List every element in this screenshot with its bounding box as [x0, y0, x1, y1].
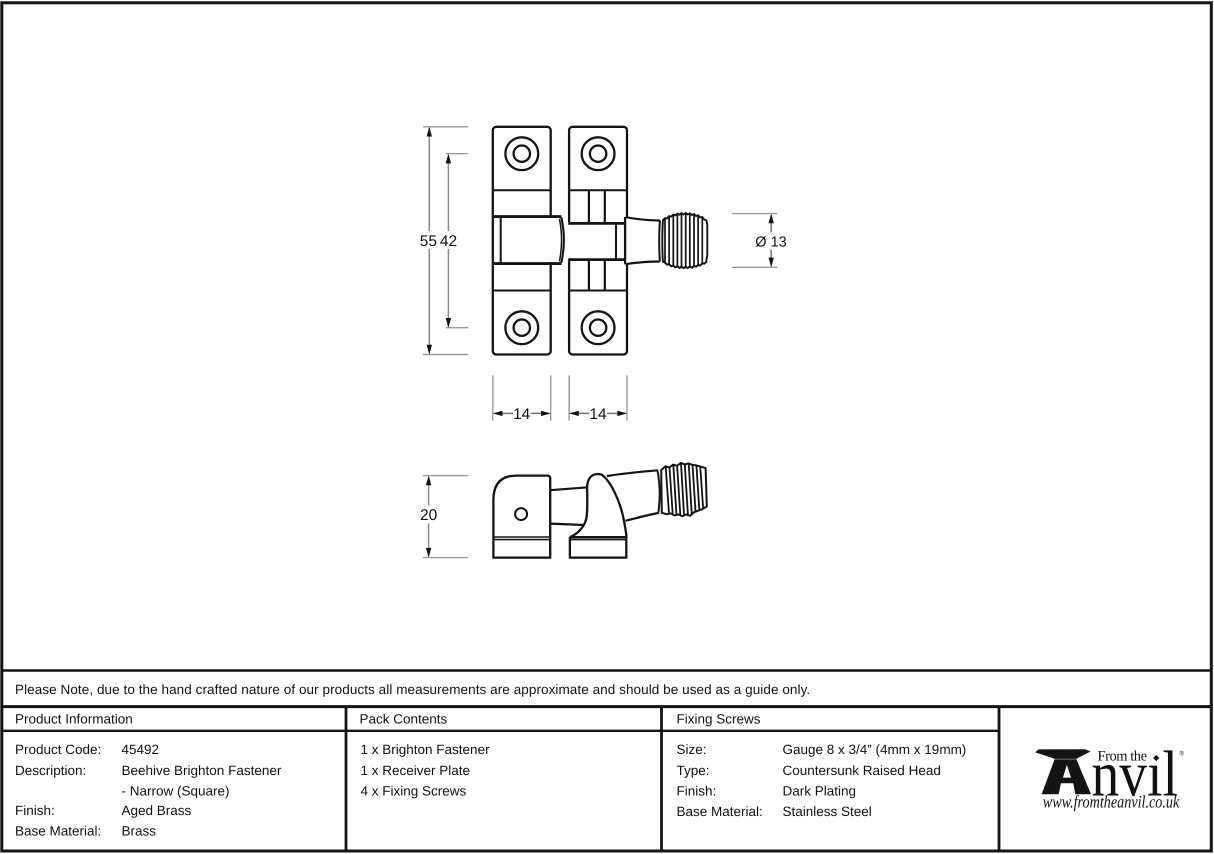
svg-text:4 x Fixing Screws: 4 x Fixing Screws: [361, 784, 467, 799]
svg-text:®: ®: [1179, 750, 1185, 758]
svg-text:Base Material:: Base Material:: [15, 824, 101, 839]
svg-text:Pack Contents: Pack Contents: [360, 712, 448, 727]
svg-text:Type:: Type:: [677, 763, 710, 778]
svg-text:Gauge 8 x 3/4” (4mm x 19mm): Gauge 8 x 3/4” (4mm x 19mm): [783, 742, 967, 757]
svg-text:42: 42: [440, 233, 457, 250]
svg-text:55: 55: [420, 233, 437, 250]
svg-text:Beehive Brighton Fastener: Beehive Brighton Fastener: [122, 763, 282, 778]
svg-text:Product Code:: Product Code:: [15, 742, 101, 757]
svg-text:Countersunk Raised Head: Countersunk Raised Head: [783, 763, 941, 778]
svg-text:Brass: Brass: [122, 824, 157, 839]
svg-text:Description:: Description:: [15, 763, 86, 778]
svg-text:45492: 45492: [122, 742, 160, 757]
svg-text:Aged Brass: Aged Brass: [122, 803, 192, 818]
svg-text:Product Information: Product Information: [15, 712, 133, 727]
svg-text:Dark Plating: Dark Plating: [783, 784, 857, 799]
svg-text:14: 14: [589, 406, 607, 423]
svg-text:Stainless Steel: Stainless Steel: [783, 804, 872, 819]
svg-text:1 x Receiver Plate: 1 x Receiver Plate: [361, 763, 471, 778]
svg-text:Finish:: Finish:: [15, 803, 55, 818]
svg-text:20: 20: [420, 507, 438, 524]
svg-text:14: 14: [513, 406, 531, 423]
svg-text:- Narrow (Square): - Narrow (Square): [122, 784, 230, 799]
svg-text:Ø 13: Ø 13: [755, 234, 786, 250]
svg-text:Finish:: Finish:: [677, 784, 717, 799]
svg-text:www.fromtheanvil.co.uk: www.fromtheanvil.co.uk: [1043, 792, 1180, 812]
svg-text:1 x Brighton Fastener: 1 x Brighton Fastener: [361, 742, 491, 757]
svg-text:Size:: Size:: [677, 742, 707, 757]
svg-text:Fixing Screws: Fixing Screws: [677, 712, 761, 727]
svg-text:Base Material:: Base Material:: [677, 804, 763, 819]
svg-text:Please Note, due to the hand c: Please Note, due to the hand crafted nat…: [15, 682, 810, 697]
